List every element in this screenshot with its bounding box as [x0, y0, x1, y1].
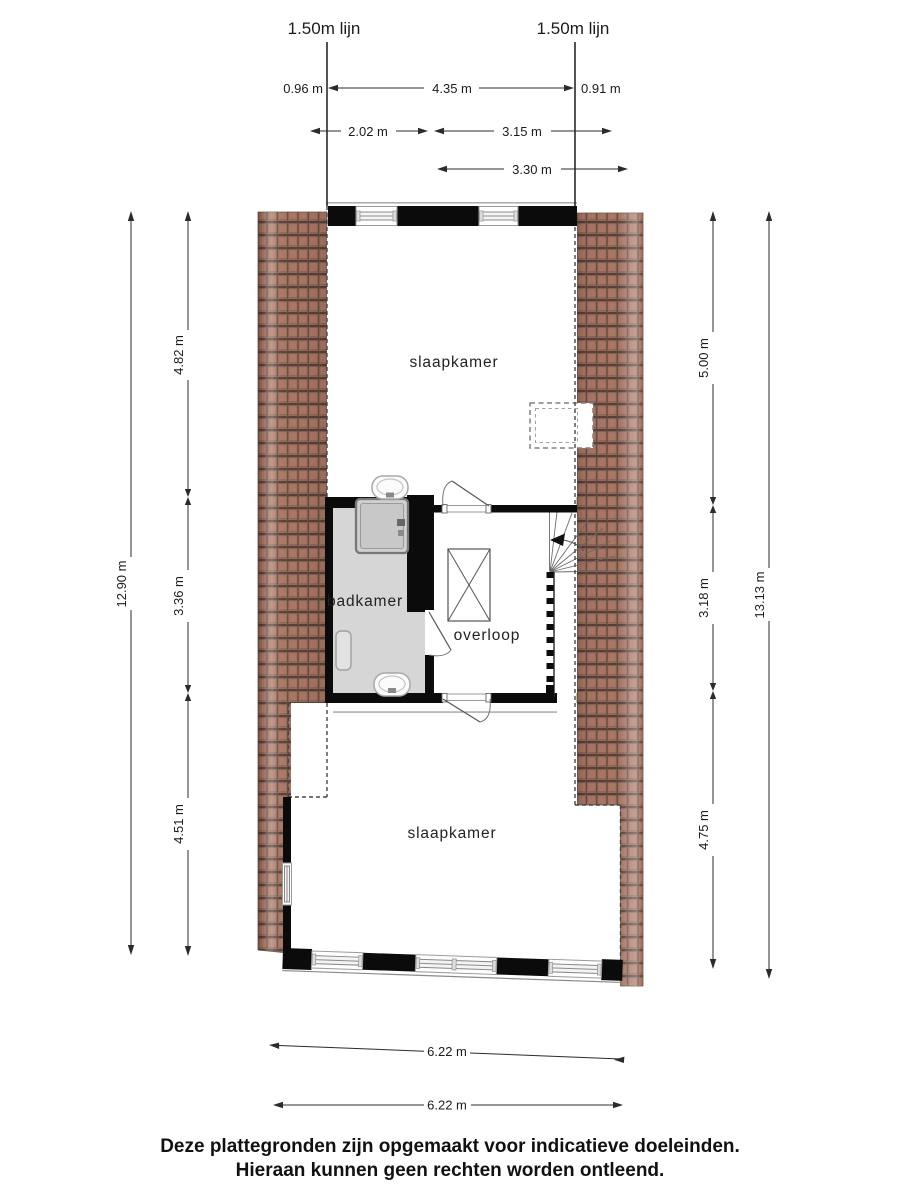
dimensions-left: 4.82 m 3.36 m 4.51 m 12.90 m: [114, 211, 191, 956]
window-bottom-2: [415, 955, 497, 975]
stairwell-void-box: [448, 549, 490, 621]
dim-left-seg3: 4.51 m: [171, 804, 186, 844]
sink-bottom: [374, 673, 410, 696]
dim-right-outer: 13.13 m: [752, 572, 767, 619]
line-150-right: 1.50m lijn: [537, 19, 610, 206]
window-left-wall: [283, 863, 292, 905]
roof-right: [577, 213, 643, 986]
room-label-bedroom-bottom: slaapkamer: [407, 825, 496, 842]
dimensions-top: 0.96 m 4.35 m 0.91 m 2.02 m 3.15 m 3.30 …: [283, 81, 628, 177]
bathroom-landing-pillar: [407, 495, 434, 612]
bedroom-bottom-left-wall: [283, 797, 291, 863]
landing-top-wall: [490, 505, 577, 513]
sink-top: [372, 476, 408, 499]
skylight-dashed: [530, 403, 593, 448]
sink-tap: [388, 688, 396, 693]
bottom-exterior-wall: [282, 948, 623, 983]
line-150-left: 1.50m lijn: [288, 19, 361, 206]
window-bottom-1: [311, 951, 363, 970]
knee-wall-line: [333, 712, 557, 713]
room-label-bedroom-top: slaapkamer: [409, 354, 498, 371]
window-bottom-3: [548, 959, 602, 978]
dim-right-seg1: 5.00 m: [696, 338, 711, 378]
dim-left-seg1: 4.82 m: [171, 335, 186, 375]
dim-bottom-upper: 6.22 m: [427, 1044, 467, 1059]
dim-top-row2-left: 2.02 m: [348, 124, 388, 139]
line-150-right-label: 1.50m lijn: [537, 19, 610, 38]
disclaimer-line-2: Hieraan kunnen geen rechten worden ontle…: [236, 1160, 665, 1181]
dimensions-right: 5.00 m 3.18 m 4.75 m 13.13 m: [696, 211, 772, 979]
dim-top-left-offset: 0.96 m: [283, 81, 323, 96]
dim-bottom-lower: 6.22 m: [427, 1098, 467, 1113]
dimensions-bottom: 6.22 m 6.22 m: [269, 1042, 625, 1112]
radiator: [336, 631, 351, 670]
disclaimer-line-1: Deze plattegronden zijn opgemaakt voor i…: [160, 1136, 740, 1157]
dim-top-right-offset: 0.91 m: [581, 81, 621, 96]
shower: [356, 499, 408, 553]
shower-mixer: [397, 519, 405, 526]
room-label-landing: overloop: [454, 627, 521, 644]
dim-top-span: 4.35 m: [432, 81, 472, 96]
floorplan-page: slaapkamer badkamer overloop slaapkamer …: [0, 0, 900, 1200]
dim-right-seg2: 3.18 m: [696, 578, 711, 618]
window-top-left: [356, 207, 397, 226]
dim-left-seg2: 3.36 m: [171, 576, 186, 616]
line-150-left-label: 1.50m lijn: [288, 19, 361, 38]
sink-tap: [386, 493, 394, 498]
floorplan-drawing: slaapkamer badkamer overloop slaapkamer …: [0, 0, 900, 1200]
dim-top-row2-right: 3.15 m: [502, 124, 542, 139]
dim-left-outer: 12.90 m: [114, 561, 129, 608]
dim-right-seg3: 4.75 m: [696, 810, 711, 850]
room-label-bathroom: badkamer: [327, 593, 403, 610]
window-top-right: [479, 207, 518, 226]
dim-top-row3: 3.30 m: [512, 162, 552, 177]
